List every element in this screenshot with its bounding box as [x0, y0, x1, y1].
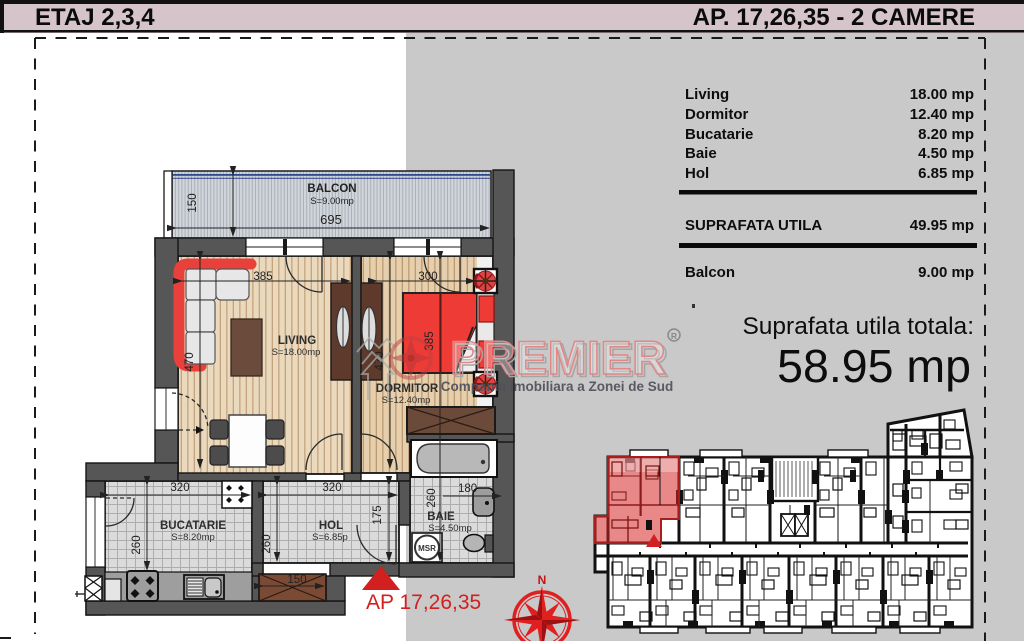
svg-text:S=4.50mp: S=4.50mp [428, 523, 472, 534]
svg-text:Balcon: Balcon [685, 264, 735, 281]
svg-text:260: 260 [261, 534, 273, 553]
svg-text:R: R [671, 331, 677, 341]
svg-text:150: 150 [287, 574, 306, 586]
svg-text:175: 175 [372, 505, 384, 524]
svg-text:Suprafata utila totala:: Suprafata utila totala: [742, 313, 974, 340]
svg-text:BUCATARIE: BUCATARIE [160, 520, 226, 532]
svg-text:N: N [538, 573, 547, 587]
svg-text:12.40 mp: 12.40 mp [910, 106, 974, 123]
svg-text:9.00 mp: 9.00 mp [918, 264, 974, 281]
svg-text:LIVING: LIVING [278, 335, 316, 347]
svg-text:260: 260 [131, 535, 143, 554]
svg-text:Living: Living [685, 86, 729, 103]
svg-text:S=6.85p: S=6.85p [312, 532, 348, 543]
svg-text:ETAJ 2,3,4: ETAJ 2,3,4 [35, 4, 155, 31]
svg-text:Hol: Hol [685, 165, 709, 182]
svg-text:300: 300 [418, 271, 437, 283]
svg-text:Baie: Baie [685, 145, 717, 162]
svg-text:AP. 17,26,35 - 2 CAMERE: AP. 17,26,35 - 2 CAMERE [693, 4, 975, 31]
svg-text:150: 150 [187, 193, 199, 212]
svg-text:58.95 mp: 58.95 mp [777, 340, 971, 392]
svg-text:180: 180 [458, 483, 477, 495]
svg-text:320: 320 [322, 482, 341, 494]
svg-text:PREMIER: PREMIER [450, 331, 666, 384]
svg-text:8.20 mp: 8.20 mp [918, 126, 974, 143]
svg-text:49.95 mp: 49.95 mp [910, 217, 974, 234]
svg-text:S=9.00mp: S=9.00mp [310, 196, 354, 207]
svg-text:695: 695 [320, 212, 342, 227]
svg-text:470: 470 [184, 352, 196, 371]
svg-text:4.50 mp: 4.50 mp [918, 145, 974, 162]
svg-text:DORMITOR: DORMITOR [376, 383, 439, 395]
svg-text:260: 260 [426, 488, 438, 507]
svg-text:Dormitor: Dormitor [685, 106, 748, 123]
svg-text:BAIE: BAIE [427, 511, 455, 523]
svg-text:Bucatarie: Bucatarie [685, 126, 753, 143]
svg-text:S=18.00mp: S=18.00mp [272, 347, 321, 358]
svg-text:385: 385 [253, 271, 272, 283]
svg-text:Compania Imobiliara a Zonei de: Compania Imobiliara a Zonei de Sud [441, 379, 674, 394]
svg-text:18.00 mp: 18.00 mp [910, 86, 974, 103]
svg-text:6.85 mp: 6.85 mp [918, 165, 974, 182]
svg-text:MSR: MSR [418, 544, 436, 553]
svg-text:320: 320 [170, 482, 189, 494]
svg-text:S=8.20mp: S=8.20mp [171, 532, 215, 543]
svg-text:HOL: HOL [319, 520, 343, 532]
svg-text:SUPRAFATA UTILA: SUPRAFATA UTILA [685, 217, 822, 234]
svg-text:BALCON: BALCON [307, 183, 356, 195]
svg-text:AP 17,26,35: AP 17,26,35 [366, 591, 481, 614]
